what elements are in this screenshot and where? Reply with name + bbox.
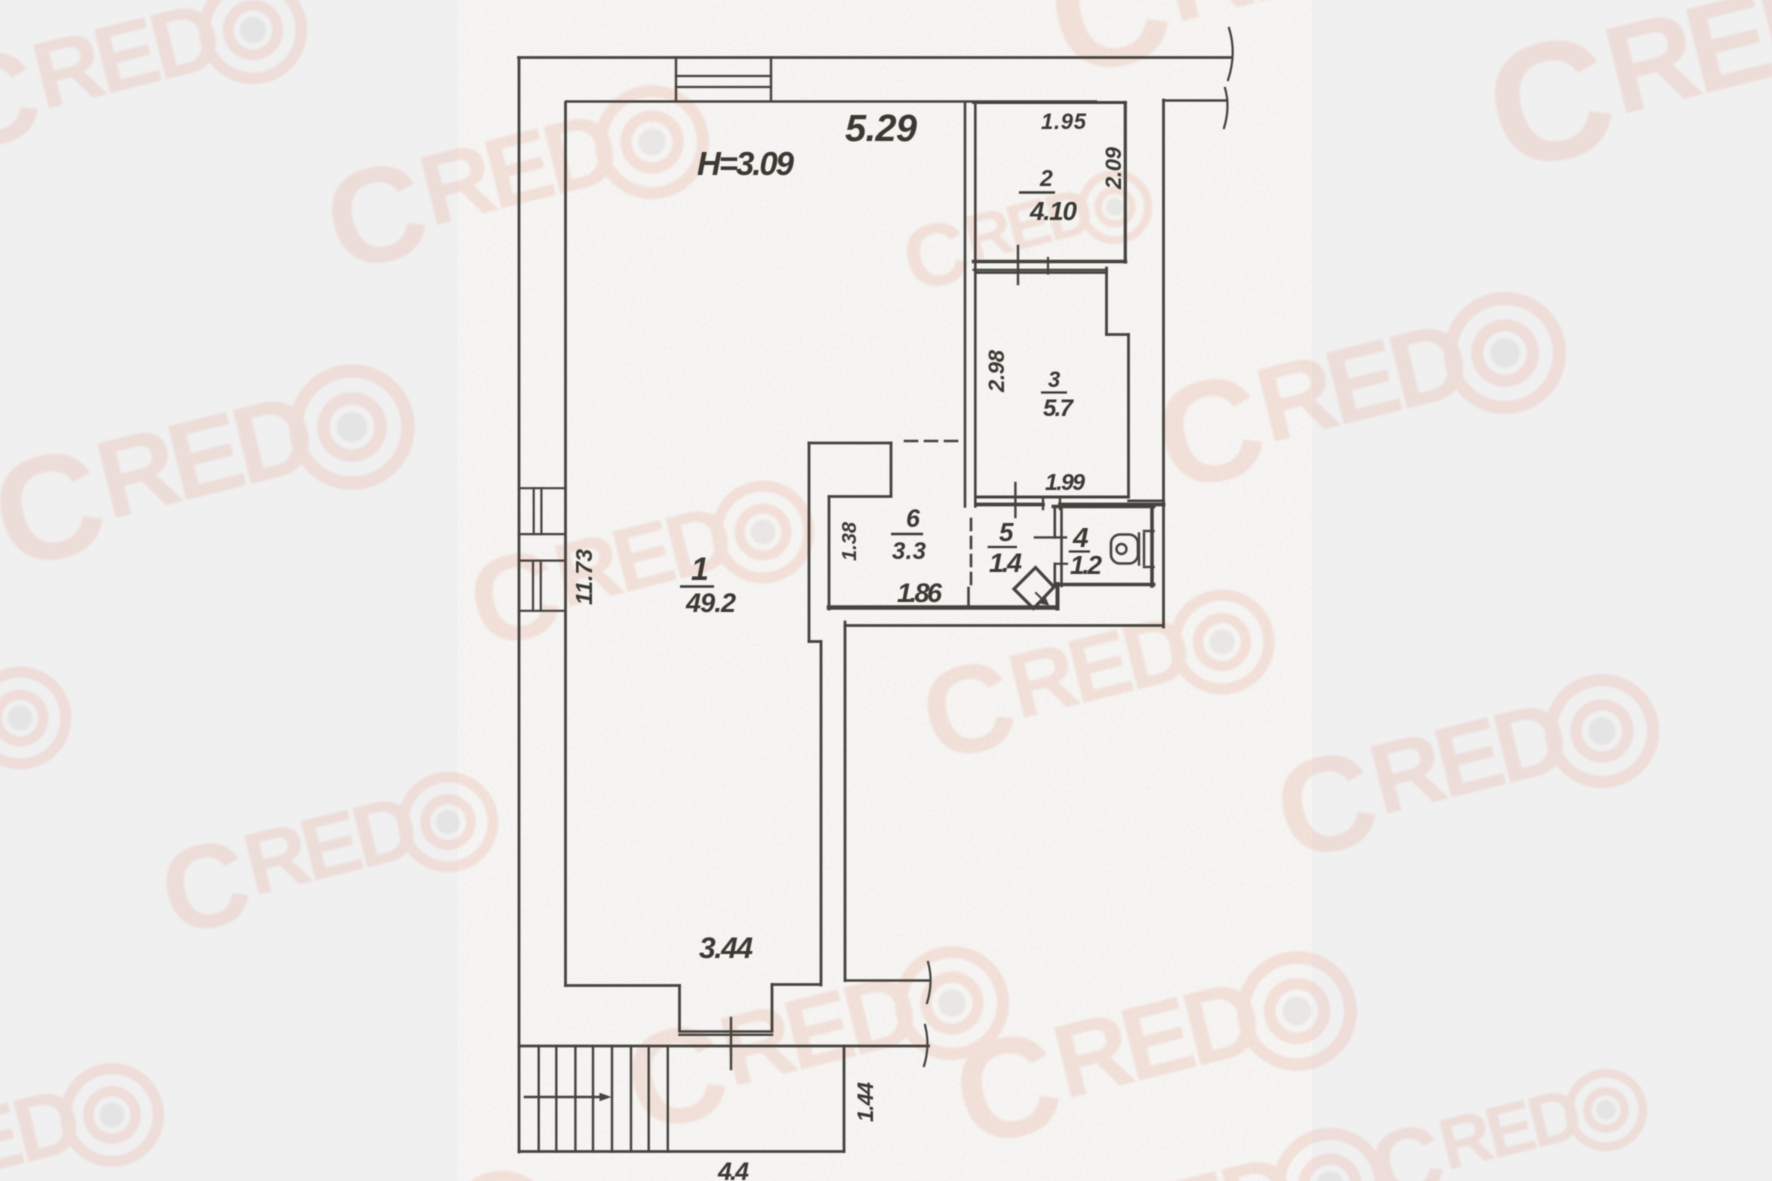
svg-text:3.3: 3.3 xyxy=(892,538,927,565)
svg-text:1.38: 1.38 xyxy=(839,521,861,561)
svg-text:5.29: 5.29 xyxy=(845,108,917,150)
svg-text:1.4: 1.4 xyxy=(989,548,1022,578)
svg-text:2: 2 xyxy=(1039,165,1053,191)
svg-text:H=3.09: H=3.09 xyxy=(697,145,795,182)
svg-text:5: 5 xyxy=(999,517,1014,547)
svg-text:6: 6 xyxy=(906,505,921,533)
svg-text:3.44: 3.44 xyxy=(699,932,753,965)
svg-text:4.10: 4.10 xyxy=(1029,196,1078,226)
svg-text:1.95: 1.95 xyxy=(1041,109,1087,134)
svg-text:1.99: 1.99 xyxy=(1045,469,1085,495)
svg-text:3: 3 xyxy=(1048,367,1060,392)
svg-text:1.44: 1.44 xyxy=(853,1082,878,1122)
svg-text:2.09: 2.09 xyxy=(1101,146,1126,190)
svg-text:1: 1 xyxy=(691,551,709,587)
svg-text:1.2: 1.2 xyxy=(1070,550,1103,580)
svg-text:1.86: 1.86 xyxy=(897,578,943,608)
svg-text:5.7: 5.7 xyxy=(1043,395,1075,422)
svg-text:11.73: 11.73 xyxy=(571,549,597,605)
svg-text:2.98: 2.98 xyxy=(984,349,1009,393)
svg-text:4: 4 xyxy=(1072,522,1089,553)
svg-text:4.4: 4.4 xyxy=(717,1158,749,1181)
svg-text:49.2: 49.2 xyxy=(685,588,736,618)
